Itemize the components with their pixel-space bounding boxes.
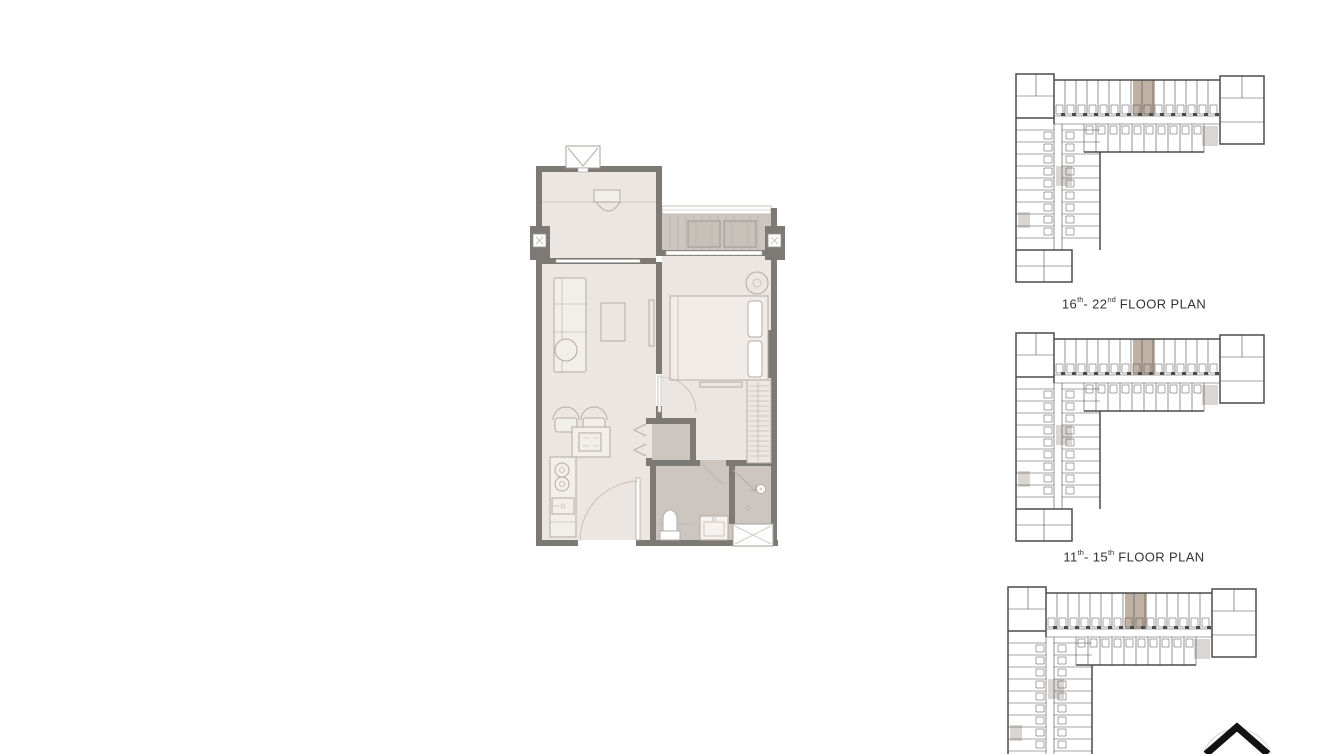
ac-condenser-icon	[724, 221, 756, 247]
desk	[594, 190, 620, 202]
label-to: 15	[1093, 549, 1108, 564]
label-from: 11	[1063, 549, 1077, 564]
unit-floor-plan	[530, 146, 785, 546]
pillow	[748, 301, 762, 337]
label-to-ordinal: nd	[1107, 295, 1115, 304]
building-plan-11-15	[1016, 333, 1264, 541]
label-from-ordinal: th	[1077, 295, 1083, 304]
floor-plan-label-11-15: 11th- 15th FLOOR PLAN	[1008, 549, 1260, 564]
column-marker	[533, 234, 546, 247]
label-dash: -	[1083, 296, 1092, 311]
wardrobe	[747, 380, 771, 463]
plan-graphics	[0, 0, 1342, 754]
ac-condenser-icon	[566, 146, 600, 172]
pillow	[748, 341, 762, 377]
label-suffix: FLOOR PLAN	[1116, 296, 1206, 311]
walk-in-closet-floor	[652, 424, 690, 460]
bathroom-door-opening	[700, 460, 726, 466]
label-to: 22	[1092, 296, 1107, 311]
floor-plan-label-16-22: 16th- 22nd FLOOR PLAN	[1008, 296, 1260, 311]
toilet-icon	[660, 531, 680, 540]
label-from: 16	[1062, 296, 1077, 311]
building-plan-partial	[1008, 587, 1256, 754]
kitchen-peninsula	[572, 427, 610, 457]
building-plan-16-22	[1016, 74, 1264, 282]
ottoman	[555, 339, 577, 361]
balcony-window	[666, 251, 762, 255]
toilet-bowl	[663, 510, 677, 531]
ac-condenser-icon	[688, 221, 720, 247]
column-marker	[768, 234, 781, 247]
label-to-ordinal: th	[1108, 548, 1114, 557]
kitchen-counter	[550, 457, 576, 537]
multipurpose-room-floor	[542, 172, 656, 264]
sliding-door	[556, 260, 640, 263]
service-shaft	[733, 524, 773, 546]
label-dash: -	[1084, 549, 1093, 564]
label-suffix: FLOOR PLAN	[1114, 549, 1204, 564]
shower-head-icon	[757, 485, 766, 494]
bedroom-door	[658, 376, 661, 412]
north-arrow-icon	[1202, 727, 1272, 754]
floor-plan-sheet: 16th- 22nd FLOOR PLAN 11th- 15th FLOOR P…	[0, 0, 1342, 754]
label-from-ordinal: th	[1078, 548, 1084, 557]
